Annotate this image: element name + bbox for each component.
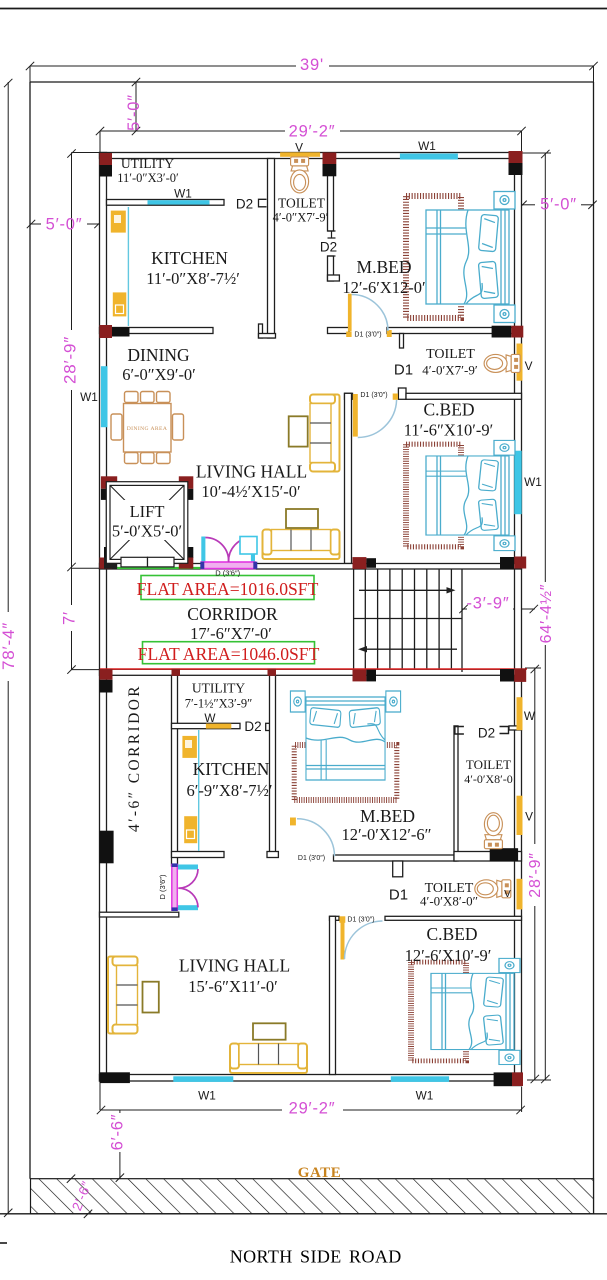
- svg-text:UTILITY: UTILITY: [192, 681, 245, 696]
- svg-text:TOILET: TOILET: [466, 757, 511, 772]
- svg-text:15′-6″X11′-0′: 15′-6″X11′-0′: [188, 977, 278, 996]
- svg-text:M.BED: M.BED: [357, 257, 412, 277]
- svg-text:V: V: [504, 889, 511, 900]
- svg-text:TOILET: TOILET: [426, 347, 475, 362]
- svg-text:39': 39': [300, 56, 324, 74]
- svg-text:CORRIDOR: CORRIDOR: [187, 604, 278, 624]
- svg-text:D1 (3′0″): D1 (3′0″): [360, 392, 387, 399]
- svg-text:5′-0′X5′-0′: 5′-0′X5′-0′: [112, 522, 182, 541]
- svg-text:W1: W1: [174, 187, 192, 201]
- svg-text:NORTH SIDE ROAD: NORTH SIDE ROAD: [230, 1247, 402, 1267]
- svg-text:11′-0″X3′-0′: 11′-0″X3′-0′: [117, 171, 179, 185]
- svg-text:LIVING HALL: LIVING HALL: [196, 462, 307, 482]
- svg-text:FLAT AREA=1046.0SFT: FLAT AREA=1046.0SFT: [138, 644, 320, 664]
- svg-text:12′-6′X10′-9′: 12′-6′X10′-9′: [405, 946, 492, 965]
- svg-text:4′-0′X7′-9′: 4′-0′X7′-9′: [422, 363, 478, 378]
- svg-text:D2: D2: [478, 726, 495, 741]
- svg-text:11′-0″X8′-7½′: 11′-0″X8′-7½′: [146, 269, 240, 288]
- svg-text:D1 (3′0″): D1 (3′0″): [298, 855, 325, 862]
- svg-text:6′-0″X9′-0′: 6′-0″X9′-0′: [122, 365, 196, 384]
- svg-text:D1 (3′0″): D1 (3′0″): [347, 917, 374, 924]
- svg-text:DINING AREA: DINING AREA: [127, 426, 168, 432]
- svg-text:KITCHEN: KITCHEN: [193, 759, 270, 779]
- svg-text:C.BED: C.BED: [426, 924, 477, 944]
- svg-text:D2: D2: [320, 240, 337, 255]
- svg-text:D2: D2: [244, 719, 261, 734]
- svg-text:W1: W1: [80, 390, 98, 404]
- svg-text:TOILET: TOILET: [278, 196, 326, 211]
- svg-text:29′-2″: 29′-2″: [289, 123, 336, 141]
- svg-text:V: V: [525, 810, 533, 824]
- svg-text:V: V: [295, 141, 303, 155]
- svg-text:12′-6′X12-0′: 12′-6′X12-0′: [342, 278, 425, 297]
- svg-text:4′-0′X8′-0″: 4′-0′X8′-0″: [420, 894, 478, 909]
- svg-text:W1: W1: [416, 1089, 434, 1103]
- svg-text:6′-9″X8′-7½′: 6′-9″X8′-7½′: [187, 781, 273, 800]
- svg-text:C.BED: C.BED: [423, 400, 474, 420]
- svg-text:5′-0″: 5′-0″: [46, 216, 83, 234]
- svg-text:W: W: [204, 711, 216, 725]
- svg-text:LIVING HALL: LIVING HALL: [179, 956, 290, 976]
- svg-text:DINING: DINING: [127, 345, 190, 365]
- svg-text:4′-0″X7′-9′: 4′-0″X7′-9′: [273, 211, 329, 225]
- svg-text:W1: W1: [524, 475, 542, 489]
- svg-text:4′-6″ CORRIDOR: 4′-6″ CORRIDOR: [126, 684, 143, 832]
- svg-text:5′-0″: 5′-0″: [540, 196, 577, 214]
- svg-text:GATE: GATE: [298, 1165, 341, 1181]
- svg-text:4′-0′X8′-0: 4′-0′X8′-0: [464, 772, 513, 786]
- svg-text:29′-2″: 29′-2″: [289, 1100, 336, 1118]
- svg-text:M.BED: M.BED: [360, 806, 415, 826]
- svg-text:KITCHEN: KITCHEN: [151, 248, 228, 268]
- svg-text:5′-0″: 5′-0″: [125, 94, 143, 131]
- svg-text:D2: D2: [236, 197, 253, 212]
- svg-text:17′-6″X7′-0′: 17′-6″X7′-0′: [190, 624, 272, 643]
- svg-text:FLAT AREA=1016.0SFT: FLAT AREA=1016.0SFT: [137, 579, 319, 599]
- svg-text:D (3′6″): D (3′6″): [215, 569, 240, 578]
- svg-text:7′: 7′: [61, 611, 79, 625]
- svg-text:7′-1½″X3′-9″: 7′-1½″X3′-9″: [185, 697, 253, 711]
- svg-text:D1: D1: [394, 362, 413, 379]
- svg-text:28′-9″: 28′-9″: [527, 852, 544, 898]
- svg-text:78′-4″: 78′-4″: [0, 622, 18, 670]
- svg-text:W: W: [524, 709, 536, 723]
- svg-text:12′-0′X12′-6″: 12′-0′X12′-6″: [341, 825, 431, 844]
- svg-text:UTILITY: UTILITY: [121, 156, 174, 171]
- svg-text:D1 (3′0″): D1 (3′0″): [354, 332, 381, 339]
- svg-text:W1: W1: [198, 1089, 216, 1103]
- svg-text:10′-4½′X15′-0′: 10′-4½′X15′-0′: [201, 482, 300, 501]
- svg-text:-3′-9″: -3′-9″: [466, 595, 509, 613]
- svg-text:28′-9″: 28′-9″: [61, 336, 80, 384]
- svg-text:6′-6″: 6′-6″: [109, 1114, 127, 1151]
- svg-text:64′-4½″: 64′-4½″: [538, 584, 555, 644]
- svg-text:11′-6″X10′-9′: 11′-6″X10′-9′: [404, 421, 494, 440]
- svg-text:LIFT: LIFT: [130, 502, 165, 521]
- svg-text:D1: D1: [389, 887, 408, 904]
- svg-text:D (3′6″): D (3′6″): [158, 874, 167, 899]
- svg-text:V: V: [525, 359, 533, 373]
- svg-text:W1: W1: [418, 139, 436, 153]
